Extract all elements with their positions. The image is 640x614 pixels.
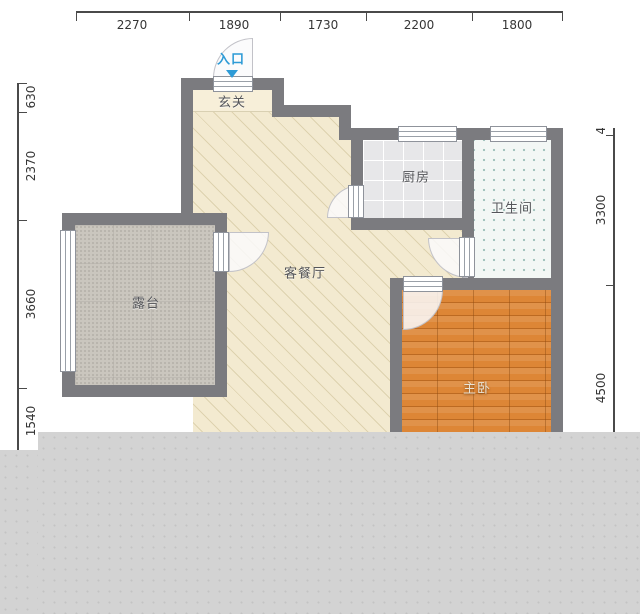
wall xyxy=(62,385,227,397)
dim-tick xyxy=(366,12,367,21)
dim-label-left: 2370 xyxy=(24,151,38,182)
dim-label-right: 4500 xyxy=(594,373,608,404)
bathroom-label: 卫生间 xyxy=(491,198,533,217)
wall xyxy=(181,78,193,225)
master-bedroom-label: 主卧 xyxy=(463,378,491,397)
dim-label-left: 1540 xyxy=(24,406,38,437)
terrace-label: 露台 xyxy=(132,293,160,312)
wall xyxy=(62,213,227,225)
gray-overlay xyxy=(38,432,640,614)
dim-tick xyxy=(472,12,473,21)
bathroom-door-leaf xyxy=(459,237,475,277)
dim-line-left xyxy=(17,83,19,450)
wall xyxy=(390,278,402,433)
entry-door-leaf xyxy=(213,76,253,92)
dim-tick xyxy=(18,112,27,113)
entry-arrow-icon xyxy=(226,70,238,78)
dim-label-top: 1800 xyxy=(502,18,533,32)
terrace-door-leaf xyxy=(213,232,229,272)
dim-tick xyxy=(606,285,614,286)
dim-label-top: 1890 xyxy=(219,18,250,32)
kitchen-window xyxy=(398,126,457,142)
foyer-label: 玄关 xyxy=(218,92,246,111)
terrace-window xyxy=(60,230,76,372)
dim-tick xyxy=(18,388,27,389)
dim-line-top xyxy=(76,11,563,13)
living-dining-label: 客餐厅 xyxy=(284,263,326,282)
dim-line-right xyxy=(613,112,615,433)
dim-tick xyxy=(18,220,27,221)
gray-overlay xyxy=(0,450,38,614)
kitchen-door-leaf xyxy=(348,185,364,218)
dim-label-top: 2200 xyxy=(404,18,435,32)
dim-label-left: 3660 xyxy=(24,289,38,320)
dim-label-top: 1730 xyxy=(308,18,339,32)
dim-tick xyxy=(76,12,77,21)
outside-area xyxy=(351,40,640,128)
kitchen-label: 厨房 xyxy=(402,167,430,186)
entry-label: 入口 xyxy=(217,49,245,68)
dim-tick xyxy=(280,12,281,21)
dim-label-top: 2270 xyxy=(117,18,148,32)
wall xyxy=(462,140,474,230)
bedroom-door-leaf xyxy=(403,276,443,292)
dim-tick xyxy=(606,135,614,136)
dim-label-left: 630 xyxy=(24,86,38,109)
wall xyxy=(351,218,474,230)
bathroom-window xyxy=(490,126,547,142)
foyer-step-line xyxy=(193,111,272,112)
dim-tick xyxy=(562,12,563,21)
dim-tick xyxy=(18,83,27,84)
dim-tick xyxy=(189,12,190,21)
dim-label-right: 3300 xyxy=(594,195,608,226)
floor-plan-canvas: 2270 1890 1730 2200 1800 630 2370 3660 1… xyxy=(0,0,640,614)
